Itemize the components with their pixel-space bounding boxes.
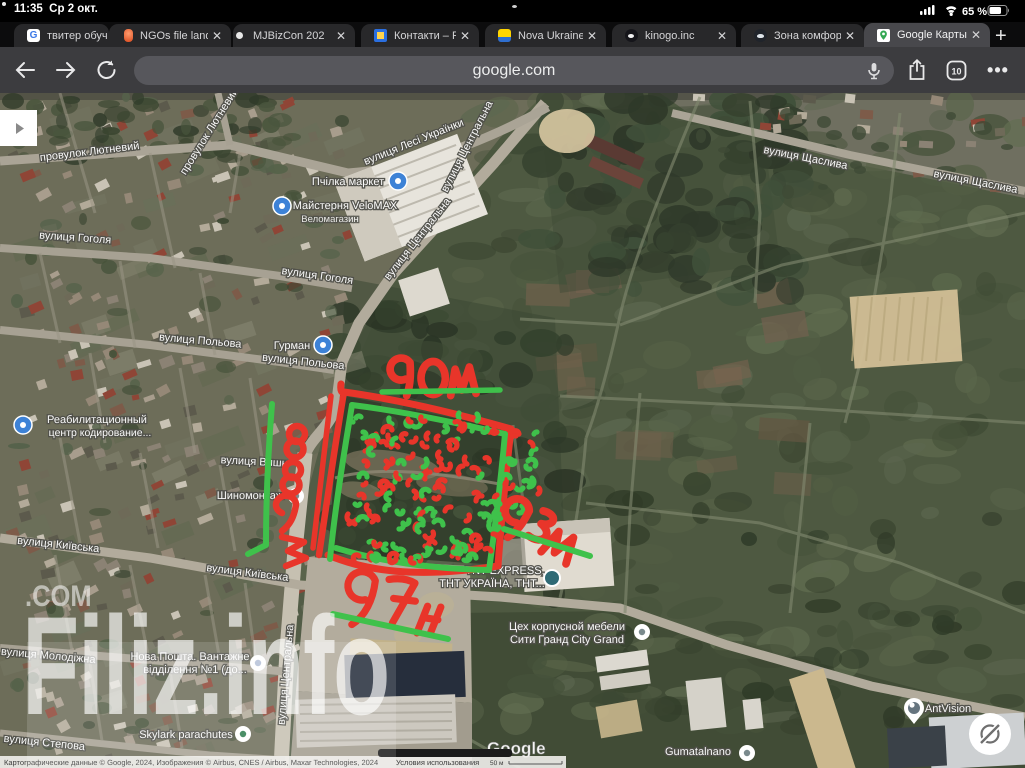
svg-text:ТНТ УКРАЇНА, ТНТ...: ТНТ УКРАЇНА, ТНТ... [439, 577, 545, 590]
svg-text:Реабилитационный: Реабилитационный [47, 414, 147, 426]
svg-text:Условия использования: Условия использования [396, 758, 479, 767]
svg-text:Гурман: Гурман [274, 340, 310, 352]
svg-text:50 м: 50 м [490, 760, 504, 767]
svg-text:Сити Гранд City Grand: Сити Гранд City Grand [510, 634, 624, 646]
svg-text:центр кодирование...: центр кодирование... [49, 427, 152, 439]
svg-text:10: 10 [951, 66, 961, 76]
svg-text:AntVision: AntVision [925, 703, 971, 715]
svg-text:Gumatalnano: Gumatalnano [665, 746, 731, 758]
svg-text:Пчілка маркет: Пчілка маркет [312, 176, 384, 188]
svg-text:65 %: 65 % [962, 6, 987, 18]
svg-text:Веломагазин: Веломагазин [301, 214, 358, 225]
svg-text:Майстерня VeloMAX: Майстерня VeloMAX [293, 200, 398, 212]
svg-text:Цех корпусной мебели: Цех корпусной мебели [509, 621, 625, 633]
